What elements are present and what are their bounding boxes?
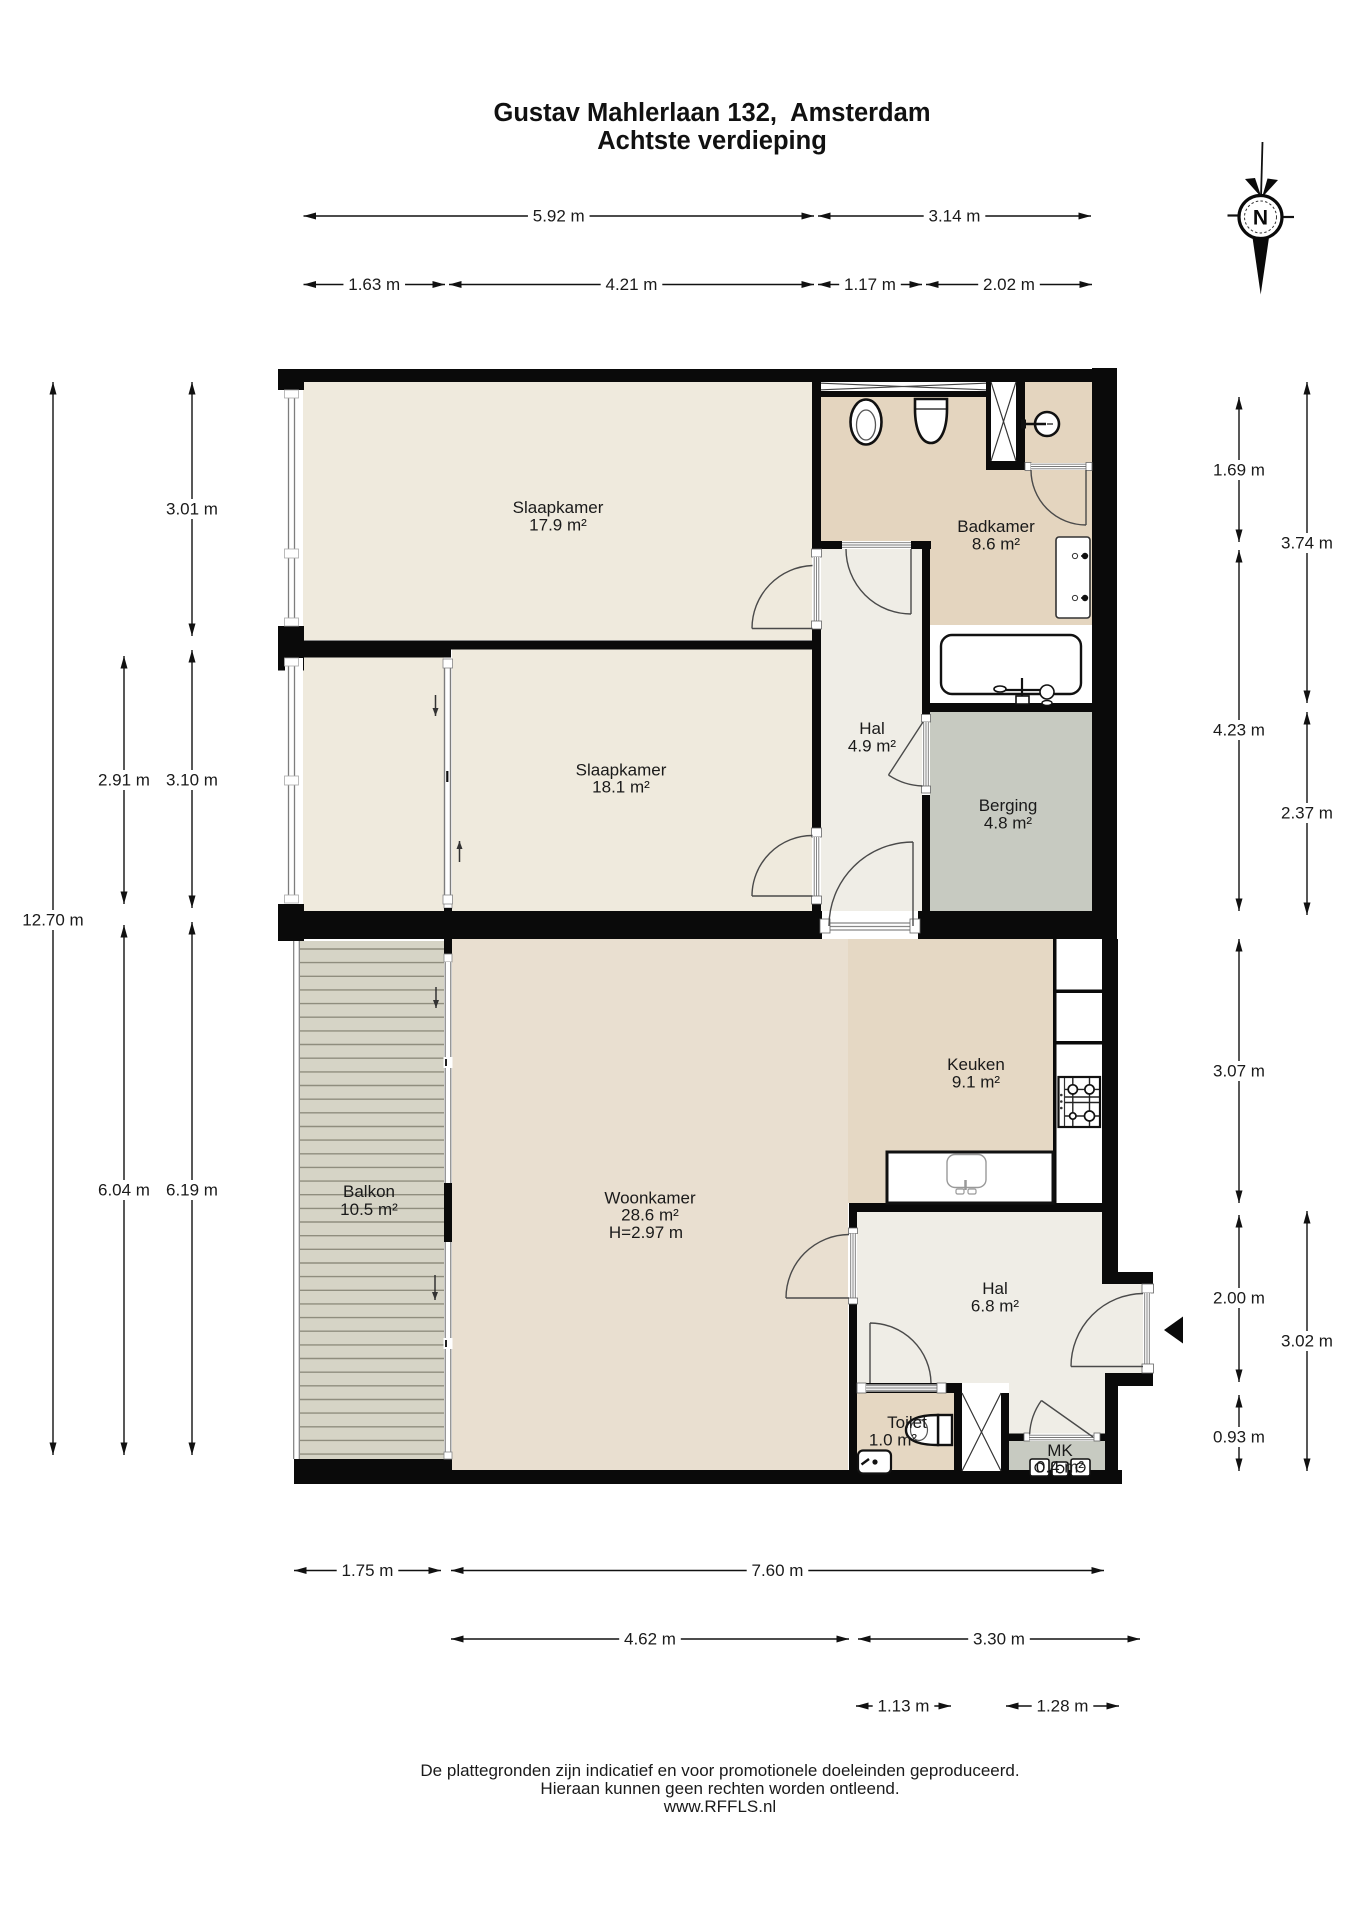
svg-text:2.02 m: 2.02 m — [983, 275, 1035, 294]
svg-text:H=2.97 m: H=2.97 m — [609, 1223, 683, 1242]
svg-text:4.62 m: 4.62 m — [624, 1630, 676, 1649]
svg-text:6.8 m²: 6.8 m² — [971, 1296, 1020, 1315]
svg-text:Berging: Berging — [979, 796, 1038, 815]
svg-text:8.6 m²: 8.6 m² — [972, 534, 1021, 553]
svg-text:3.14 m: 3.14 m — [929, 207, 981, 226]
svg-text:7.60 m: 7.60 m — [752, 1561, 804, 1580]
svg-text:3.10 m: 3.10 m — [166, 771, 218, 790]
svg-text:4.8 m²: 4.8 m² — [984, 813, 1033, 832]
svg-text:Slaapkamer: Slaapkamer — [513, 498, 604, 517]
svg-text:28.6 m²: 28.6 m² — [621, 1206, 679, 1225]
svg-text:3.02 m: 3.02 m — [1281, 1332, 1333, 1351]
svg-text:0.4 m²: 0.4 m² — [1036, 1458, 1085, 1477]
svg-text:6.19 m: 6.19 m — [166, 1181, 218, 1200]
svg-text:Slaapkamer: Slaapkamer — [576, 760, 667, 779]
svg-text:2.91 m: 2.91 m — [98, 771, 150, 790]
svg-text:4.21 m: 4.21 m — [606, 275, 658, 294]
svg-text:4.9 m²: 4.9 m² — [848, 736, 897, 755]
svg-text:2.00 m: 2.00 m — [1213, 1289, 1265, 1308]
svg-text:1.28 m: 1.28 m — [1037, 1697, 1089, 1716]
svg-text:6.04 m: 6.04 m — [98, 1181, 150, 1200]
svg-text:1.13 m: 1.13 m — [878, 1697, 930, 1716]
svg-text:18.1 m²: 18.1 m² — [592, 778, 650, 797]
svg-text:N: N — [1253, 207, 1268, 230]
svg-text:9.1 m²: 9.1 m² — [952, 1072, 1001, 1091]
svg-text:3.74 m: 3.74 m — [1281, 534, 1333, 553]
svg-text:Balkon: Balkon — [343, 1182, 395, 1201]
svg-text:Achtste verdieping: Achtste verdieping — [597, 127, 827, 155]
svg-text:1.0 m²: 1.0 m² — [869, 1430, 918, 1449]
svg-text:12.70 m: 12.70 m — [22, 911, 83, 930]
svg-text:0.93 m: 0.93 m — [1213, 1428, 1265, 1447]
svg-text:www.RFFLS.nl: www.RFFLS.nl — [663, 1797, 776, 1816]
svg-text:3.01 m: 3.01 m — [166, 500, 218, 519]
svg-text:10.5 m²: 10.5 m² — [340, 1200, 398, 1219]
svg-text:De plattegronden zijn indicati: De plattegronden zijn indicatief en voor… — [420, 1761, 1019, 1780]
svg-text:5.92 m: 5.92 m — [533, 207, 585, 226]
svg-text:3.07 m: 3.07 m — [1213, 1062, 1265, 1081]
svg-text:Hal: Hal — [859, 719, 885, 738]
svg-text:4.23 m: 4.23 m — [1213, 721, 1265, 740]
svg-text:Keuken: Keuken — [947, 1055, 1005, 1074]
svg-text:Badkamer: Badkamer — [957, 517, 1035, 536]
svg-text:Gustav Mahlerlaan 132, Amster: Gustav Mahlerlaan 132, Amsterdam — [494, 99, 931, 127]
svg-text:1.63 m: 1.63 m — [348, 275, 400, 294]
svg-text:Woonkamer: Woonkamer — [604, 1188, 696, 1207]
svg-text:3.30 m: 3.30 m — [973, 1630, 1025, 1649]
svg-text:Hal: Hal — [982, 1279, 1008, 1298]
svg-text:1.69 m: 1.69 m — [1213, 461, 1265, 480]
svg-text:1.17 m: 1.17 m — [844, 275, 896, 294]
svg-text:Hieraan kunnen geen rechten wo: Hieraan kunnen geen rechten worden ontle… — [540, 1779, 899, 1798]
svg-text:17.9 m²: 17.9 m² — [529, 515, 587, 534]
svg-text:2.37 m: 2.37 m — [1281, 804, 1333, 823]
svg-text:1.75 m: 1.75 m — [342, 1561, 394, 1580]
svg-text:Toilet: Toilet — [887, 1413, 927, 1432]
